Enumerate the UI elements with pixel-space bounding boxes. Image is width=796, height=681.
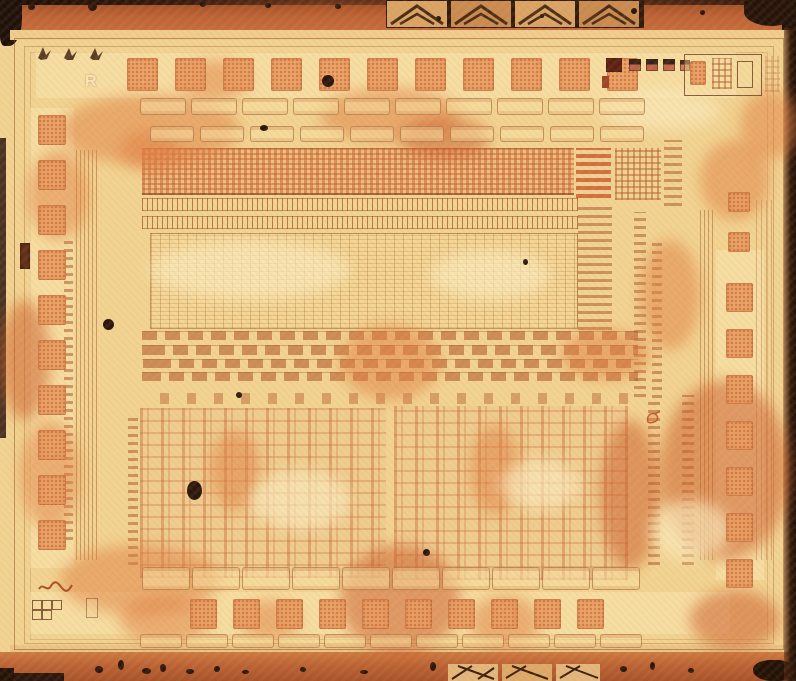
trace-bar — [508, 634, 550, 648]
bond-pad-bottom — [319, 599, 346, 629]
trace-bar — [554, 634, 596, 648]
comb-row-1 — [142, 198, 578, 211]
mask-square-4 — [32, 610, 42, 620]
trace-bar — [450, 126, 494, 142]
dark-speck — [631, 8, 637, 14]
mask-square-2 — [42, 600, 52, 610]
dark-speck — [650, 662, 655, 670]
dark-speck — [423, 549, 430, 556]
bond-pad-bottom — [276, 599, 303, 629]
trace-bar — [400, 126, 444, 142]
bond-pad-bottom — [491, 599, 518, 629]
trace-bar — [232, 634, 274, 648]
test-square-2 — [629, 59, 641, 71]
top-right-block-pad — [690, 61, 706, 85]
dark-speck — [118, 660, 124, 670]
bond-pad-left — [38, 475, 66, 505]
dark-speck — [436, 16, 441, 21]
oxide-stain-blob — [690, 590, 780, 650]
mask-square-1 — [32, 600, 42, 610]
trace-bar — [293, 98, 339, 115]
bond-pad-top — [127, 58, 158, 91]
trace-bar — [600, 634, 642, 648]
matrix-right-cells — [578, 205, 612, 330]
bond-pad-bottom — [448, 599, 475, 629]
trace-bar — [350, 126, 394, 142]
dark-speck — [187, 481, 202, 500]
chip-die-photo: R — [0, 0, 796, 681]
dark-speck — [322, 75, 334, 87]
trace-bar — [186, 634, 228, 648]
chevron-tile — [451, 1, 511, 27]
handwritten-squiggle — [38, 580, 74, 594]
bond-pad-left — [38, 385, 66, 415]
bond-pad-right — [726, 421, 753, 450]
trace-bar — [292, 567, 340, 590]
bond-pad-left — [38, 250, 66, 280]
trace-bar — [142, 567, 190, 590]
trace-bar — [446, 98, 492, 115]
dark-speck — [236, 392, 242, 398]
dark-speck — [103, 319, 114, 330]
trace-bar — [592, 567, 640, 590]
bond-pad-left — [38, 160, 66, 190]
right-cell-grid — [615, 148, 661, 200]
comb-row-2 — [142, 216, 578, 229]
dark-speck — [186, 669, 194, 674]
trace-bar — [548, 98, 594, 115]
test-square-tick — [602, 76, 609, 88]
dark-speck — [95, 666, 103, 673]
mask-square-5 — [42, 610, 52, 620]
bottom-x-scribe-tiles — [448, 664, 608, 681]
bond-pad-bottom — [233, 599, 260, 629]
trace-bar — [278, 634, 320, 648]
mask-revision-letter: R — [85, 73, 98, 91]
dark-speck — [688, 668, 694, 673]
bond-pad-top — [319, 58, 350, 91]
paisley-scratch — [645, 410, 663, 426]
top-right-faint-grid — [765, 56, 780, 92]
dark-speck — [142, 668, 151, 674]
highlight-patch — [650, 500, 730, 560]
trace-bar — [191, 98, 237, 115]
bond-pad-bottom — [577, 599, 604, 629]
oxide-stain-blob — [340, 325, 440, 400]
trace-bar — [392, 567, 440, 590]
test-square-1 — [606, 58, 622, 72]
bond-pad-right — [726, 283, 753, 312]
bond-pad-top — [223, 58, 254, 91]
dark-speck — [300, 667, 306, 672]
dark-speck — [160, 664, 166, 672]
dark-speck — [265, 3, 271, 8]
mask-rect-outline — [86, 598, 98, 618]
trace-bar — [192, 567, 240, 590]
bond-pad-top — [367, 58, 398, 91]
bond-pad-left — [38, 115, 66, 145]
dark-speck — [242, 670, 249, 674]
bond-pad-right — [726, 375, 753, 404]
bond-pad-right — [726, 513, 753, 542]
highlight-patch — [430, 250, 550, 300]
right-bar-stack — [576, 148, 611, 198]
bottom-left-corner-dark — [0, 668, 14, 681]
bond-pad-right-small — [728, 192, 750, 212]
dark-speck — [540, 14, 544, 18]
dark-speck — [335, 4, 341, 9]
bond-pad-top — [463, 58, 494, 91]
trace-bar — [342, 567, 390, 590]
bond-pad-top — [511, 58, 542, 91]
dark-speck — [260, 125, 268, 131]
bond-pad-top — [175, 58, 206, 91]
bond-pad-bottom — [405, 599, 432, 629]
trace-bar — [599, 98, 645, 115]
trace-bar — [492, 567, 540, 590]
mask-bird-marks — [36, 46, 108, 64]
bond-pad-right — [726, 467, 753, 496]
dark-speck — [200, 2, 206, 7]
bond-pad-top — [559, 58, 590, 91]
right-small-cells — [664, 140, 682, 206]
top-right-block-rect — [737, 61, 753, 88]
highlight-patch — [250, 470, 350, 530]
trace-bar — [300, 126, 344, 142]
chevron-tile — [515, 1, 575, 27]
trace-bar — [542, 567, 590, 590]
bond-pad-bottom — [190, 599, 217, 629]
trace-bar — [250, 126, 294, 142]
trace-bar — [242, 98, 288, 115]
dark-speck — [360, 670, 368, 674]
dark-speck — [430, 662, 436, 671]
chevron-tile — [387, 1, 447, 27]
dark-speck — [620, 666, 627, 672]
dark-speck — [88, 2, 97, 11]
trace-bar — [344, 98, 390, 115]
bond-pad-left — [38, 205, 66, 235]
trace-bar — [500, 126, 544, 142]
trace-bar — [550, 126, 594, 142]
trace-bar — [140, 98, 186, 115]
test-square-4 — [663, 59, 675, 71]
bond-pad-right-small — [728, 232, 750, 252]
alignment-chevron-strip — [386, 0, 644, 28]
dark-speck — [28, 4, 35, 10]
bond-pad-left — [38, 520, 66, 550]
top-right-block-grid — [712, 58, 732, 89]
bond-pad-left — [38, 340, 66, 370]
mask-square-3 — [52, 600, 62, 610]
bond-pad-right — [726, 329, 753, 358]
oxide-stain-blob — [600, 420, 660, 570]
bond-pad-top — [415, 58, 446, 91]
highlight-patch — [150, 240, 350, 300]
array-left-sliver — [128, 415, 138, 565]
oxide-stain-blob — [560, 330, 650, 380]
oxide-stain-blob — [740, 90, 796, 160]
test-square-3 — [646, 59, 658, 71]
trace-bar — [462, 634, 504, 648]
bond-pad-left — [38, 295, 66, 325]
trace-bar — [442, 567, 490, 590]
dark-speck — [214, 666, 220, 672]
trace-bar — [324, 634, 366, 648]
bond-pad-right — [726, 559, 753, 588]
trace-bar — [140, 634, 182, 648]
trace-bar — [242, 567, 290, 590]
trace-bar — [497, 98, 543, 115]
left-edge-dark-rect — [20, 243, 30, 269]
trace-bar — [416, 634, 458, 648]
oxide-stain-blob — [640, 240, 700, 350]
trace-bar — [395, 98, 441, 115]
bond-pad-top — [271, 58, 302, 91]
bond-pad-bottom — [362, 599, 389, 629]
trace-bar — [370, 634, 412, 648]
dark-speck — [523, 259, 528, 265]
trace-bar — [200, 126, 244, 142]
trace-bar — [150, 126, 194, 142]
dark-speck — [700, 10, 705, 15]
bond-pad-bottom — [534, 599, 561, 629]
highlight-patch — [500, 460, 580, 510]
chevron-tile — [579, 1, 639, 27]
trace-bar — [600, 126, 644, 142]
bond-pad-left — [38, 430, 66, 460]
